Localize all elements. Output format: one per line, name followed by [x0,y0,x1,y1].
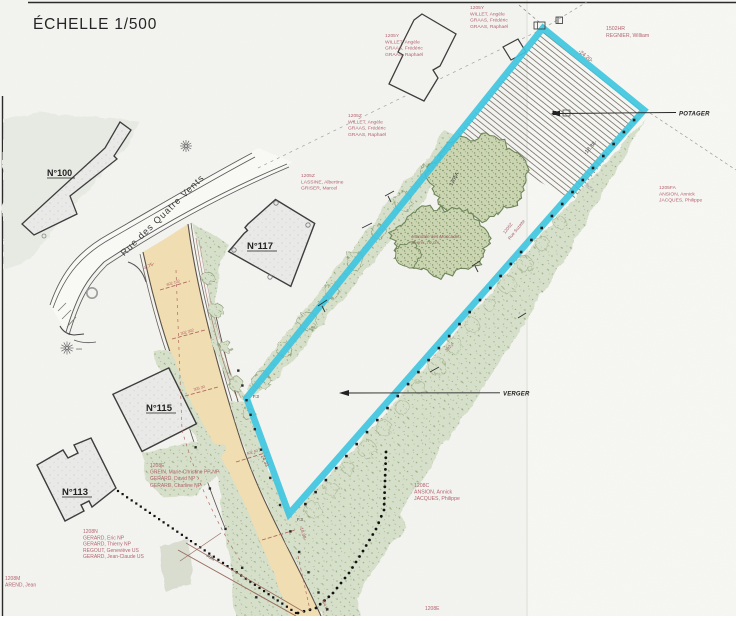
svg-text:1208E: 1208E [425,606,440,612]
svg-text:N°117: N°117 [247,241,273,252]
svg-text:N°113: N°113 [62,487,88,498]
svg-text:N°100: N°100 [47,168,72,178]
svg-text:F.3: F.3 [253,394,259,399]
svg-text:F.3: F.3 [297,517,303,522]
svg-text:VERGER: VERGER [503,392,530,398]
svg-text:aaa: aaa [76,347,82,351]
svg-text:N°115: N°115 [146,403,173,414]
svg-text:POTAGER: POTAGER [679,112,710,118]
svg-text:ÉCHELLE 1/500: ÉCHELLE 1/500 [33,16,157,33]
